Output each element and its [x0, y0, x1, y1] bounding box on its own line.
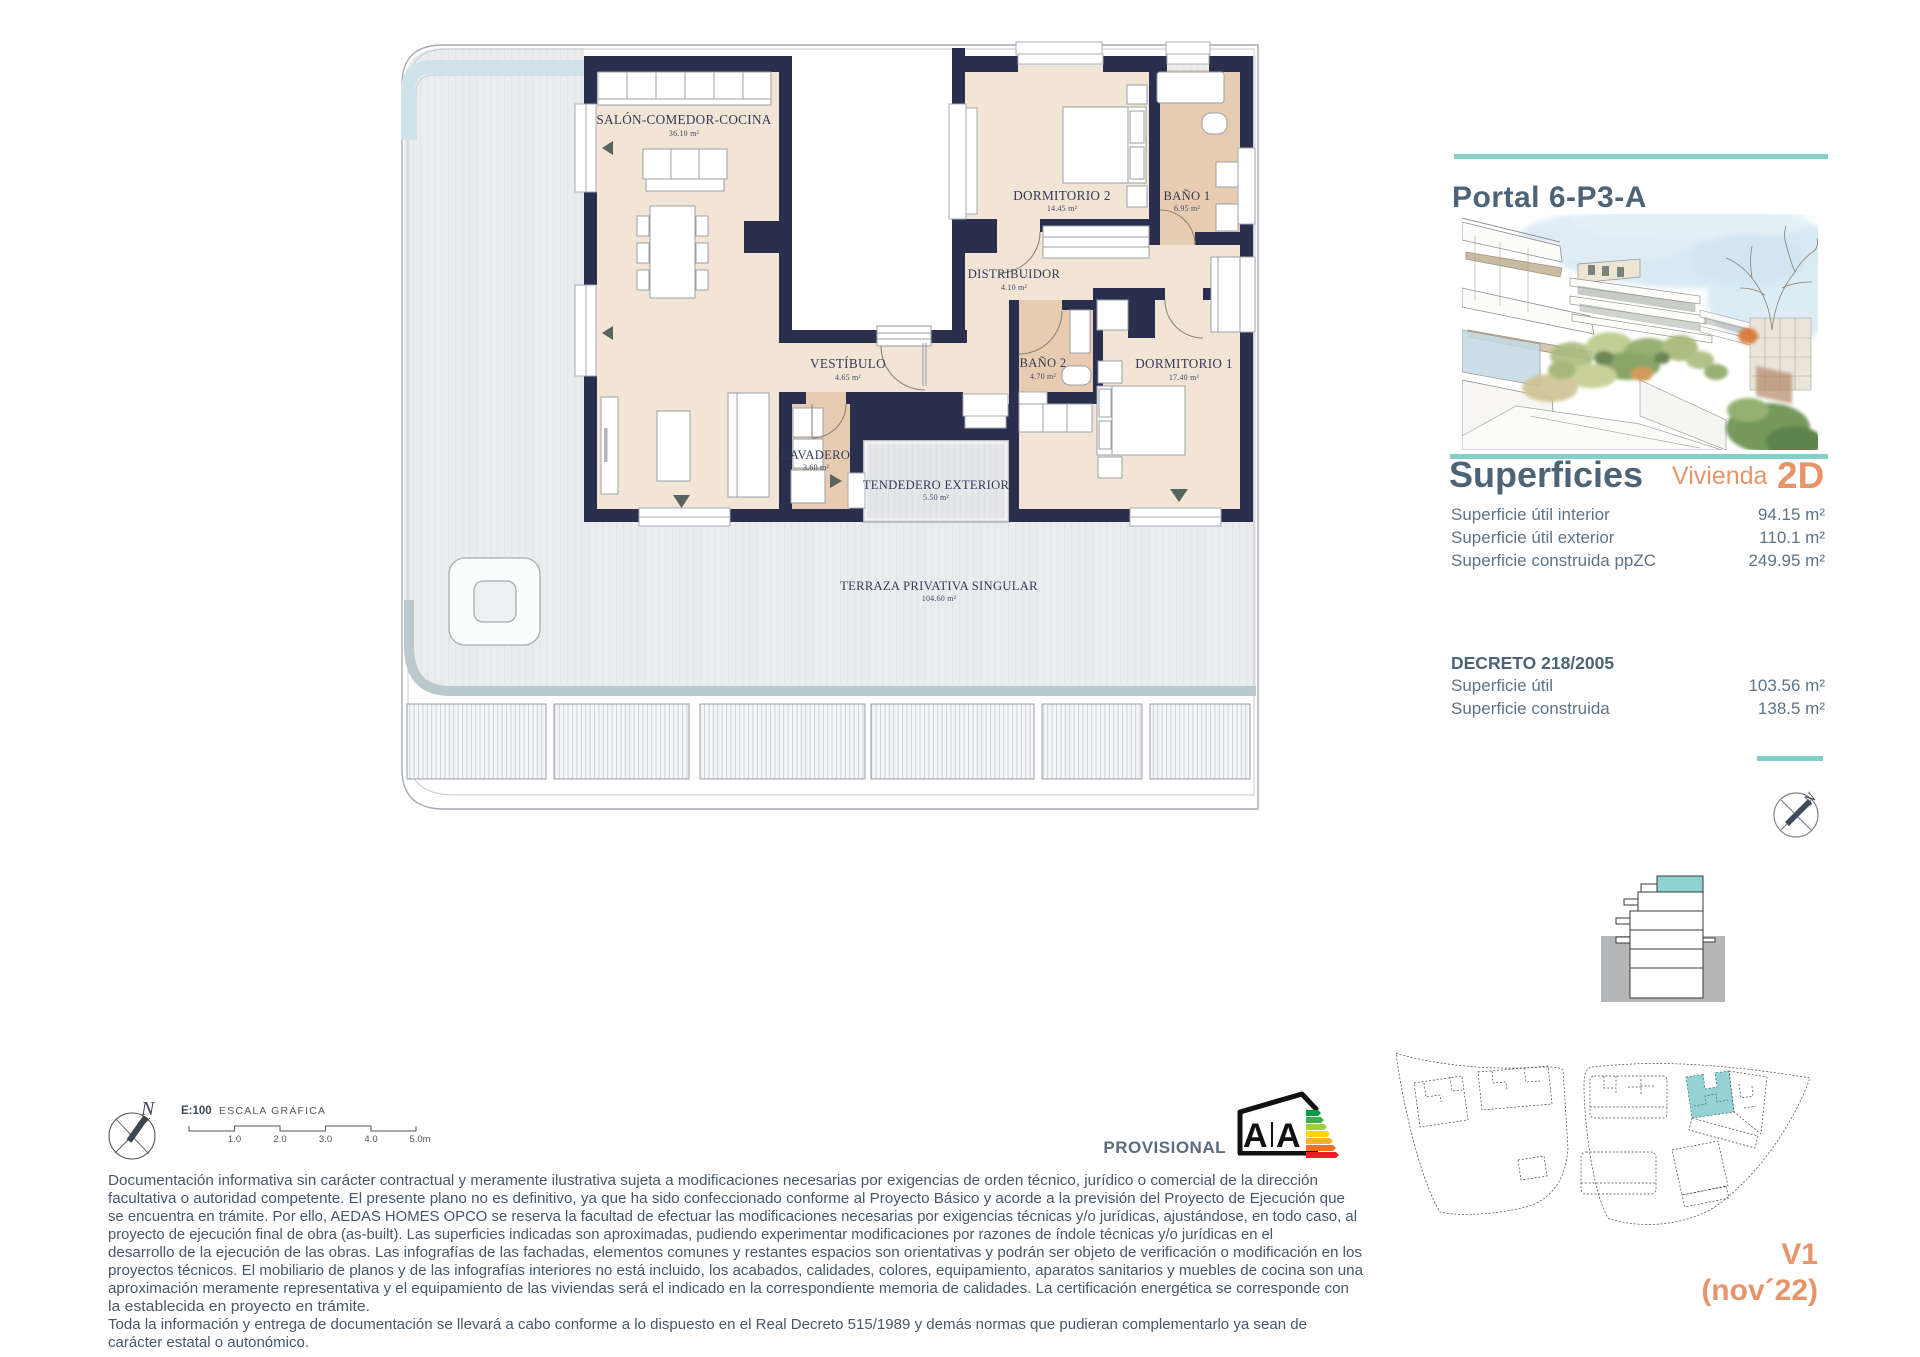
svg-text:Superficie útil: Superficie útil: [1451, 676, 1553, 695]
svg-text:VESTÍBULO: VESTÍBULO: [810, 356, 886, 371]
svg-text:N: N: [140, 1098, 156, 1120]
svg-text:4.70 m²: 4.70 m²: [1030, 372, 1056, 381]
svg-text:Superficie construida: Superficie construida: [1451, 699, 1610, 718]
svg-text:la establecida en proyecto en: la establecida en proyecto en trámite.: [108, 1299, 370, 1315]
svg-text:A: A: [1243, 1117, 1268, 1155]
svg-text:DORMITORIO 2: DORMITORIO 2: [1013, 188, 1111, 203]
svg-text:SALÓN-COMEDOR-COCINA: SALÓN-COMEDOR-COCINA: [596, 112, 771, 127]
svg-text:1.0: 1.0: [228, 1134, 241, 1145]
svg-text:249.95 m²: 249.95 m²: [1748, 551, 1825, 570]
svg-text:(nov´22): (nov´22): [1701, 1274, 1818, 1307]
svg-text:4.0: 4.0: [364, 1134, 377, 1145]
svg-text:facultativa o autoridad compet: facultativa o autoridad competente. El p…: [108, 1191, 1345, 1207]
svg-text:Superficie construida ppZC: Superficie construida ppZC: [1451, 551, 1656, 570]
svg-text:aproximación meramente represe: aproximación meramente representativa y …: [108, 1281, 1349, 1297]
svg-text:3.0: 3.0: [319, 1134, 332, 1145]
svg-text:138.5 m²: 138.5 m²: [1758, 699, 1825, 718]
svg-text:2D: 2D: [1777, 455, 1824, 496]
svg-text:6.95 m²: 6.95 m²: [1174, 204, 1200, 213]
svg-text:DORMITORIO 1: DORMITORIO 1: [1135, 356, 1233, 371]
svg-text:110.1 m²: 110.1 m²: [1759, 528, 1825, 547]
svg-text:TERRAZA PRIVATIVA SINGULAR: TERRAZA PRIVATIVA SINGULAR: [840, 579, 1038, 593]
svg-text:4.65 m²: 4.65 m²: [835, 373, 861, 382]
svg-text:17.40 m²: 17.40 m²: [1169, 373, 1200, 382]
svg-text:desarrollo de la ejecución de: desarrollo de la ejecución de las obras.…: [108, 1245, 1362, 1261]
svg-text:Superficie útil exterior: Superficie útil exterior: [1451, 528, 1615, 547]
svg-text:Portal 6-P3-A: Portal 6-P3-A: [1452, 181, 1647, 214]
svg-text:carácter estatal o autonómico.: carácter estatal o autonómico.: [108, 1335, 309, 1351]
svg-text:Vivienda: Vivienda: [1672, 462, 1768, 490]
svg-text:36.10 m²: 36.10 m²: [669, 129, 700, 138]
svg-text:4.10 m²: 4.10 m²: [1001, 283, 1027, 292]
svg-text:DECRETO 218/2005: DECRETO 218/2005: [1451, 653, 1614, 673]
svg-text:5.50 m²: 5.50 m²: [923, 493, 949, 502]
svg-text:PROVISIONAL: PROVISIONAL: [1103, 1138, 1226, 1157]
svg-text:2.0: 2.0: [273, 1134, 286, 1145]
svg-text:TENDEDERO EXTERIOR: TENDEDERO EXTERIOR: [863, 478, 1010, 492]
svg-text:ESCALA GRÁFICA: ESCALA GRÁFICA: [219, 1104, 326, 1117]
svg-text:Toda la información y entrega: Toda la información y entrega de documen…: [108, 1317, 1307, 1333]
svg-text:103.56 m²: 103.56 m²: [1748, 676, 1825, 695]
svg-text:DISTRIBUIDOR: DISTRIBUIDOR: [968, 267, 1061, 281]
svg-text:BAÑO 2: BAÑO 2: [1020, 356, 1067, 370]
svg-text:proyectos técnicos. El mobilia: proyectos técnicos. El mobiliario de pla…: [108, 1263, 1364, 1279]
svg-text:104.60 m²: 104.60 m²: [922, 594, 957, 603]
svg-text:BAÑO 1: BAÑO 1: [1164, 189, 1211, 203]
svg-text:3.60 m²: 3.60 m²: [803, 463, 829, 472]
svg-text:LAVADERO: LAVADERO: [782, 448, 850, 462]
svg-text:Documentación informativa sin: Documentación informativa sin carácter c…: [108, 1173, 1318, 1189]
svg-text:14.45 m²: 14.45 m²: [1047, 204, 1078, 213]
svg-text:proyecto de ejecución final de: proyecto de ejecución final de obra (as-…: [108, 1227, 1273, 1243]
svg-text:E:100: E:100: [181, 1105, 212, 1117]
svg-text:Superficies: Superficies: [1449, 454, 1643, 495]
svg-text:94.15 m²: 94.15 m²: [1758, 505, 1825, 524]
svg-text:se encuentra en trámite. Por e: se encuentra en trámite. Por ello, AEDAS…: [108, 1209, 1357, 1225]
svg-text:V1: V1: [1781, 1238, 1818, 1271]
svg-text:5.0m: 5.0m: [409, 1134, 430, 1145]
svg-text:A: A: [1276, 1117, 1301, 1155]
svg-text:Superficie útil interior: Superficie útil interior: [1451, 505, 1610, 524]
